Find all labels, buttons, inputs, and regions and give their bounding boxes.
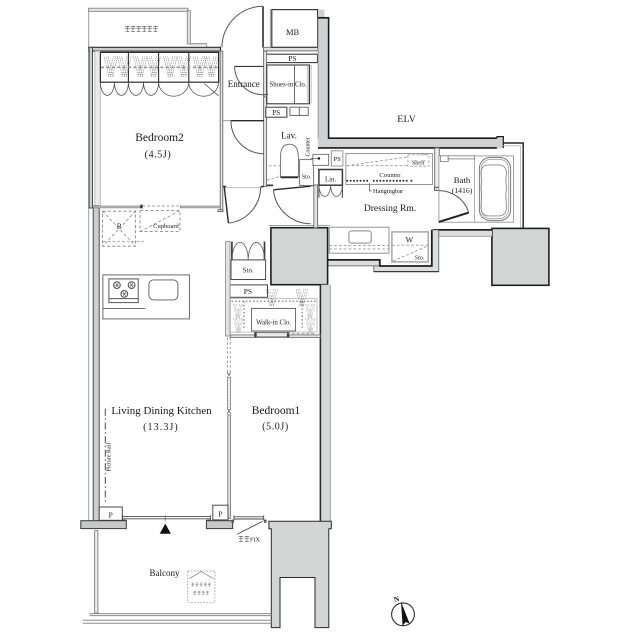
svg-text:W: W <box>406 235 414 244</box>
svg-text:(4.5J): (4.5J) <box>145 149 172 160</box>
svg-text:Balcony: Balcony <box>150 568 180 578</box>
svg-text:PS: PS <box>272 109 280 117</box>
svg-text:Bath: Bath <box>454 175 471 185</box>
svg-text:Counter: Counter <box>305 137 311 156</box>
svg-text:Shelf: Shelf <box>412 160 426 167</box>
svg-text:Shoes-in Clo.: Shoes-in Clo. <box>269 82 306 89</box>
svg-text:Sto.: Sto. <box>302 174 312 180</box>
svg-text:Dressing Rm.: Dressing Rm. <box>364 204 416 214</box>
svg-text:Bedroom2: Bedroom2 <box>135 132 184 144</box>
svg-text:ELV: ELV <box>397 115 416 125</box>
svg-text:Lin.: Lin. <box>325 177 336 184</box>
svg-text:Bedroom1: Bedroom1 <box>252 405 301 417</box>
svg-text:PS: PS <box>244 287 252 296</box>
svg-text:Walk-in Clo.: Walk-in Clo. <box>256 320 291 327</box>
svg-text:Hangingbar: Hangingbar <box>373 188 404 195</box>
svg-text:Lav.: Lav. <box>281 131 297 141</box>
svg-text:(1416): (1416) <box>452 186 473 195</box>
svg-text:PS: PS <box>288 54 296 63</box>
svg-text:Picture Rail: Picture Rail <box>107 443 113 472</box>
svg-text:FIX: FIX <box>250 536 261 543</box>
svg-text:PS: PS <box>334 156 342 163</box>
svg-text:Sto.: Sto. <box>243 267 254 274</box>
svg-text:(5.0J): (5.0J) <box>262 421 289 432</box>
svg-text:Cupboard: Cupboard <box>153 223 179 230</box>
svg-text:Sto.: Sto. <box>415 255 425 262</box>
svg-text:R: R <box>117 222 122 231</box>
svg-text:MB: MB <box>286 27 300 37</box>
svg-text:(13.3J): (13.3J) <box>143 422 179 433</box>
svg-text:P: P <box>218 510 222 519</box>
svg-text:Counter: Counter <box>379 172 401 179</box>
svg-text:P: P <box>109 511 113 520</box>
svg-text:Living Dining Kitchen: Living Dining Kitchen <box>111 405 212 417</box>
